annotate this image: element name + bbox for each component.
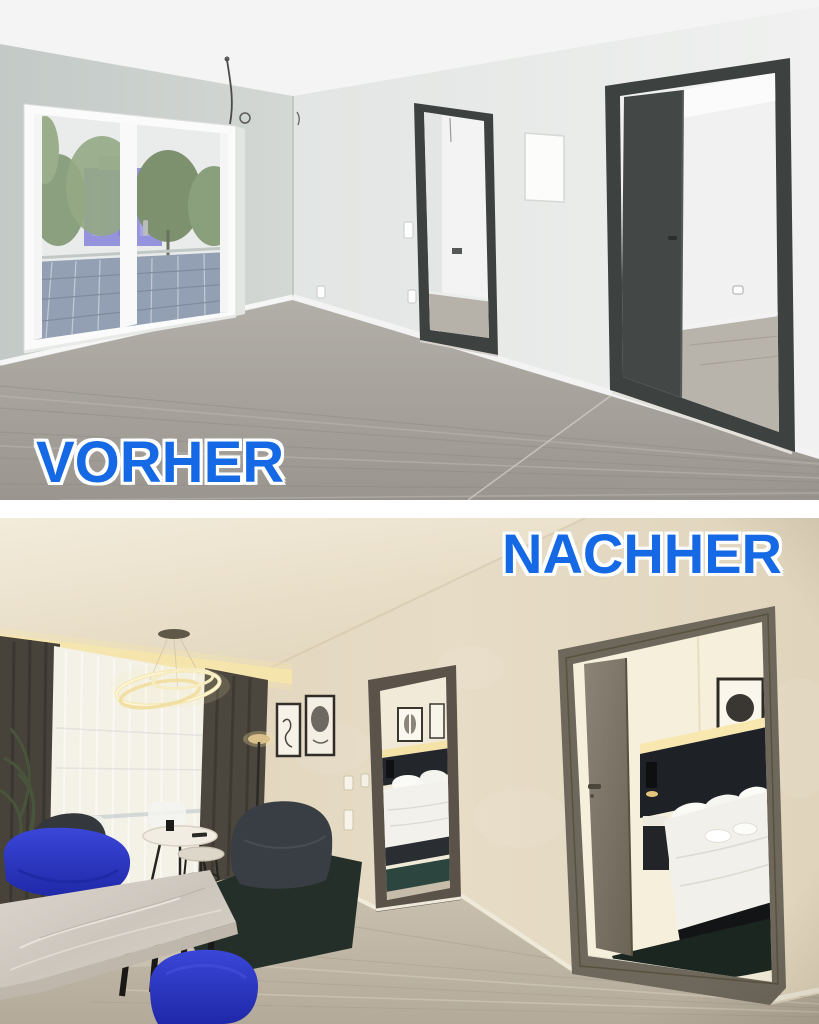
after-photo-illustration	[0, 518, 819, 1024]
vignette	[0, 518, 819, 1024]
before-after-collage: VORHER	[0, 0, 819, 1024]
after-photo: NACHHER	[0, 518, 819, 1024]
before-photo: VORHER	[0, 0, 819, 500]
photo-divider	[0, 500, 819, 518]
after-label: NACHHER	[502, 526, 782, 582]
before-label: VORHER	[36, 434, 284, 492]
before-photo-illustration	[0, 0, 819, 500]
vignette	[0, 0, 819, 500]
